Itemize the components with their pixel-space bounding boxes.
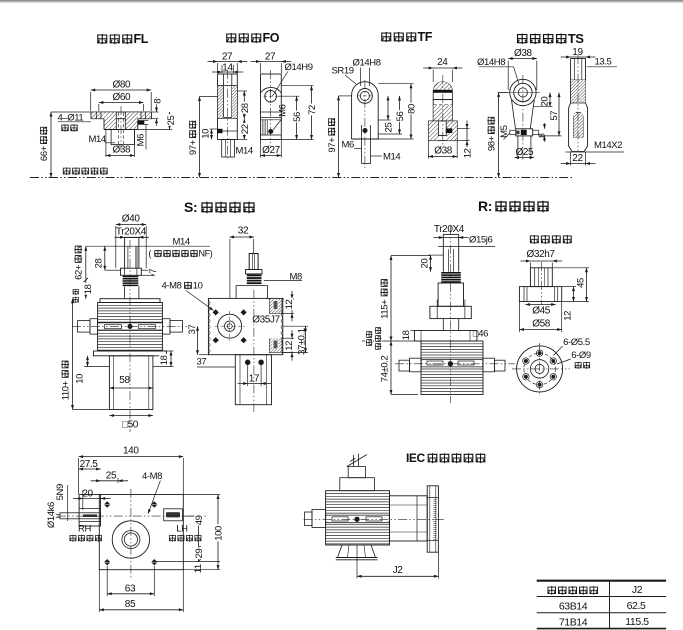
svg-text:14: 14 xyxy=(222,63,233,74)
svg-text:12: 12 xyxy=(562,311,573,321)
svg-text:TF: TF xyxy=(418,30,433,44)
svg-text:80: 80 xyxy=(407,104,418,114)
svg-text:□50: □50 xyxy=(122,420,139,431)
svg-text:TS: TS xyxy=(568,31,585,46)
svg-text:28: 28 xyxy=(93,259,104,269)
svg-text:24: 24 xyxy=(437,57,448,68)
svg-text:27: 27 xyxy=(222,52,233,63)
svg-text:32: 32 xyxy=(238,226,249,237)
svg-text:62.5: 62.5 xyxy=(627,600,646,612)
svg-text:20: 20 xyxy=(419,259,430,269)
svg-text:Ø58: Ø58 xyxy=(532,319,551,330)
svg-text:Tr20X4: Tr20X4 xyxy=(434,224,465,235)
svg-text:LH: LH xyxy=(176,524,188,535)
svg-text:12: 12 xyxy=(284,341,295,351)
svg-text:Ø14H9: Ø14H9 xyxy=(285,62,313,73)
svg-text:27.5: 27.5 xyxy=(80,459,99,470)
svg-text:74±0.2: 74±0.2 xyxy=(379,355,390,382)
svg-text:37: 37 xyxy=(197,357,207,368)
svg-text:100: 100 xyxy=(213,526,224,541)
svg-text:J2: J2 xyxy=(393,565,404,576)
svg-text:Ø25: Ø25 xyxy=(516,147,535,158)
svg-text:S:: S: xyxy=(184,199,197,215)
svg-text:110+: 110+ xyxy=(60,380,71,400)
svg-text:49: 49 xyxy=(194,515,205,525)
svg-text:10: 10 xyxy=(74,374,85,384)
svg-text:98+: 98+ xyxy=(486,135,497,151)
svg-text:4-M8: 4-M8 xyxy=(142,471,162,482)
svg-text:□46: □46 xyxy=(473,329,488,340)
svg-text:11: 11 xyxy=(193,564,204,573)
svg-text:Ø27: Ø27 xyxy=(262,145,281,156)
svg-text:M8: M8 xyxy=(290,272,303,283)
svg-text:25: 25 xyxy=(384,123,395,133)
svg-text:Ø14H8: Ø14H8 xyxy=(353,58,381,69)
svg-text:M14: M14 xyxy=(173,236,190,247)
svg-text:M14: M14 xyxy=(89,134,106,145)
svg-text:Ø15j6: Ø15j6 xyxy=(469,235,492,246)
svg-text:M6: M6 xyxy=(342,140,355,151)
svg-text:37±0.1: 37±0.1 xyxy=(296,328,307,355)
svg-text:28: 28 xyxy=(240,103,251,113)
svg-text:22: 22 xyxy=(572,153,583,164)
svg-text:63: 63 xyxy=(125,583,136,594)
svg-text:25: 25 xyxy=(106,471,117,482)
svg-text:115.5: 115.5 xyxy=(625,616,649,628)
svg-text:22: 22 xyxy=(240,124,251,134)
svg-text:18: 18 xyxy=(401,330,412,340)
svg-text:58: 58 xyxy=(119,375,130,386)
svg-text:(: ( xyxy=(148,249,151,259)
svg-text:M6: M6 xyxy=(135,134,146,147)
svg-text:115+: 115+ xyxy=(379,299,390,319)
svg-text:M5: M5 xyxy=(499,125,510,138)
svg-text:62+: 62+ xyxy=(73,264,84,280)
svg-text:FL: FL xyxy=(134,32,149,46)
svg-text:Ø38: Ø38 xyxy=(434,146,453,157)
svg-text:19: 19 xyxy=(572,47,583,58)
svg-text:6-Ø9: 6-Ø9 xyxy=(571,350,591,361)
svg-text:56: 56 xyxy=(292,112,303,122)
svg-text:8: 8 xyxy=(537,133,547,138)
svg-text:Ø32h7: Ø32h7 xyxy=(527,249,556,260)
svg-text:25: 25 xyxy=(166,116,177,126)
svg-text:Ø45: Ø45 xyxy=(532,306,551,317)
svg-text:17: 17 xyxy=(249,373,260,384)
svg-text:56: 56 xyxy=(395,112,406,122)
svg-text:29: 29 xyxy=(194,549,205,559)
svg-text:20: 20 xyxy=(539,97,550,107)
svg-text:4-M8: 4-M8 xyxy=(162,281,182,292)
svg-text:IEC: IEC xyxy=(406,451,426,465)
svg-text:20: 20 xyxy=(82,489,93,500)
svg-text:27: 27 xyxy=(265,52,276,63)
svg-text:M14: M14 xyxy=(236,146,253,157)
svg-text:Ø38: Ø38 xyxy=(113,145,132,156)
svg-text:5N9: 5N9 xyxy=(55,484,66,500)
svg-text:45: 45 xyxy=(575,278,586,288)
svg-text:10: 10 xyxy=(200,129,211,139)
svg-text:57: 57 xyxy=(549,111,560,121)
svg-text:Tr20X4: Tr20X4 xyxy=(116,227,147,238)
svg-text:18: 18 xyxy=(159,355,170,365)
svg-text:J2: J2 xyxy=(632,584,643,596)
svg-text:12: 12 xyxy=(463,148,474,158)
svg-text:7: 7 xyxy=(148,269,159,274)
svg-text:SR19: SR19 xyxy=(332,66,354,77)
svg-text:10: 10 xyxy=(193,281,203,292)
svg-text:Ø14k6: Ø14k6 xyxy=(46,502,57,528)
svg-text:NF): NF) xyxy=(199,249,213,259)
svg-text:Ø38: Ø38 xyxy=(514,48,533,59)
svg-text:Ø35J7: Ø35J7 xyxy=(252,315,280,326)
svg-text:18: 18 xyxy=(83,284,94,294)
svg-text:13.5: 13.5 xyxy=(595,57,612,68)
svg-text:37: 37 xyxy=(187,325,198,335)
svg-text:M6: M6 xyxy=(278,104,289,117)
svg-text:M14: M14 xyxy=(383,152,400,163)
svg-text:66+: 66+ xyxy=(39,145,50,161)
svg-text:72: 72 xyxy=(307,105,318,115)
svg-text:6-Ø5.5: 6-Ø5.5 xyxy=(563,337,590,348)
svg-text:140: 140 xyxy=(123,446,139,457)
svg-text:Ø60: Ø60 xyxy=(113,92,132,103)
svg-text:FO: FO xyxy=(263,31,280,45)
svg-text:97+: 97+ xyxy=(188,139,199,155)
svg-text:RH: RH xyxy=(78,524,91,535)
svg-text:R:: R: xyxy=(478,198,492,214)
svg-text:12: 12 xyxy=(284,300,295,310)
svg-text:8: 8 xyxy=(152,99,163,104)
svg-text:97+: 97+ xyxy=(327,137,338,153)
svg-text:71B14: 71B14 xyxy=(559,617,588,629)
svg-text:Ø40: Ø40 xyxy=(122,214,141,225)
svg-text:63B14: 63B14 xyxy=(559,600,588,612)
svg-text:Ø14H8: Ø14H8 xyxy=(477,57,505,68)
svg-text:M14X2: M14X2 xyxy=(594,140,622,151)
svg-text:Ø80: Ø80 xyxy=(113,80,132,91)
svg-text:85: 85 xyxy=(125,599,136,610)
